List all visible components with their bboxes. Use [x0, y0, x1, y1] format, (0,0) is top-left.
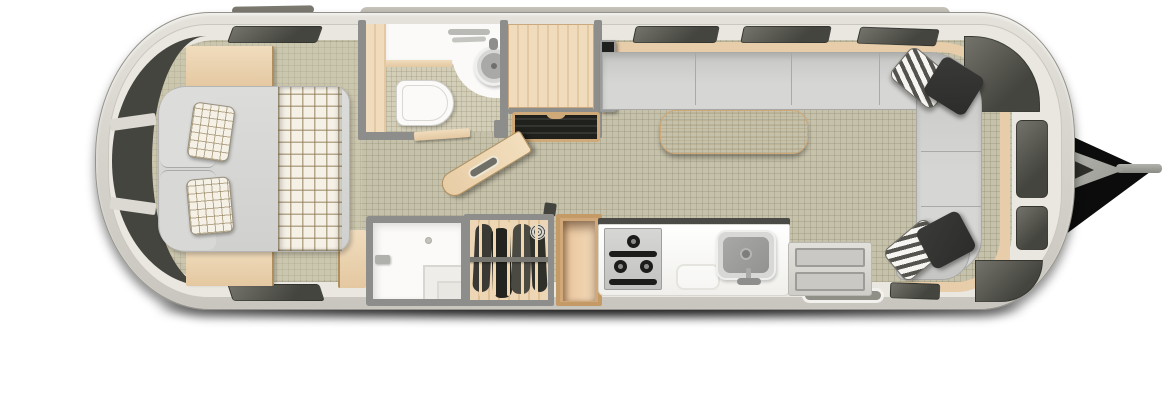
sofa-seam — [921, 151, 981, 152]
bathroom-faucet — [489, 38, 498, 50]
bathroom-side-cabinet — [366, 24, 386, 132]
counter-extension-panel — [795, 248, 865, 267]
stove-burner — [614, 260, 627, 273]
shower-valve — [375, 255, 390, 264]
plaid-pillow-bottom — [186, 176, 235, 236]
shower-drain — [425, 237, 432, 244]
bathroom-wall-left — [358, 20, 366, 140]
sofa-seam — [879, 53, 880, 105]
coiled-item — [530, 224, 546, 240]
dinette-table — [660, 110, 808, 154]
window-top-lounge-3 — [856, 27, 940, 47]
sofa-seam — [695, 53, 696, 105]
kitchen-sink-drain — [740, 248, 752, 260]
bathroom-wall-right — [500, 20, 508, 138]
nightstand-top — [186, 46, 274, 88]
hanging-closet — [464, 214, 554, 306]
window-bottom-kitchen-2 — [890, 282, 941, 300]
floorplan-canvas — [0, 0, 1170, 408]
closet-rod — [468, 257, 552, 262]
toilet-seat-line — [402, 85, 448, 121]
plaid-throw-blanket — [278, 87, 342, 251]
counter-extension-panel — [795, 272, 865, 291]
open-cabinet-interior — [563, 221, 595, 301]
counter-extension — [788, 242, 872, 296]
shower-bench-step — [437, 281, 461, 299]
cutting-board — [676, 264, 720, 290]
window-top-lounge-2 — [740, 26, 832, 43]
sofa-seam — [791, 53, 792, 105]
stove-grate — [609, 279, 657, 285]
tongue-bar — [1116, 164, 1162, 173]
kitchen-faucet-handle — [737, 278, 761, 285]
window-front-right-mid — [1016, 120, 1048, 198]
wardrobe-top — [508, 24, 594, 108]
stove — [604, 228, 662, 290]
stove-burner — [640, 260, 653, 273]
window-front-right-low — [1016, 206, 1048, 250]
open-cabinet — [556, 214, 602, 306]
plaid-pillow-top — [186, 101, 235, 162]
window-bottom-bedroom — [227, 284, 325, 301]
sofa-seam — [921, 206, 981, 207]
shower-stall — [366, 216, 468, 306]
bathroom-sink-drain — [491, 63, 497, 69]
stove-grate — [609, 251, 657, 257]
window-top-lounge-1 — [632, 26, 720, 43]
stove-burner — [627, 235, 640, 248]
vanity-front-edge — [386, 60, 452, 67]
window-top-bedroom — [227, 26, 323, 43]
nightstand-bottom — [186, 246, 274, 286]
toiletry-item-1 — [448, 29, 490, 35]
